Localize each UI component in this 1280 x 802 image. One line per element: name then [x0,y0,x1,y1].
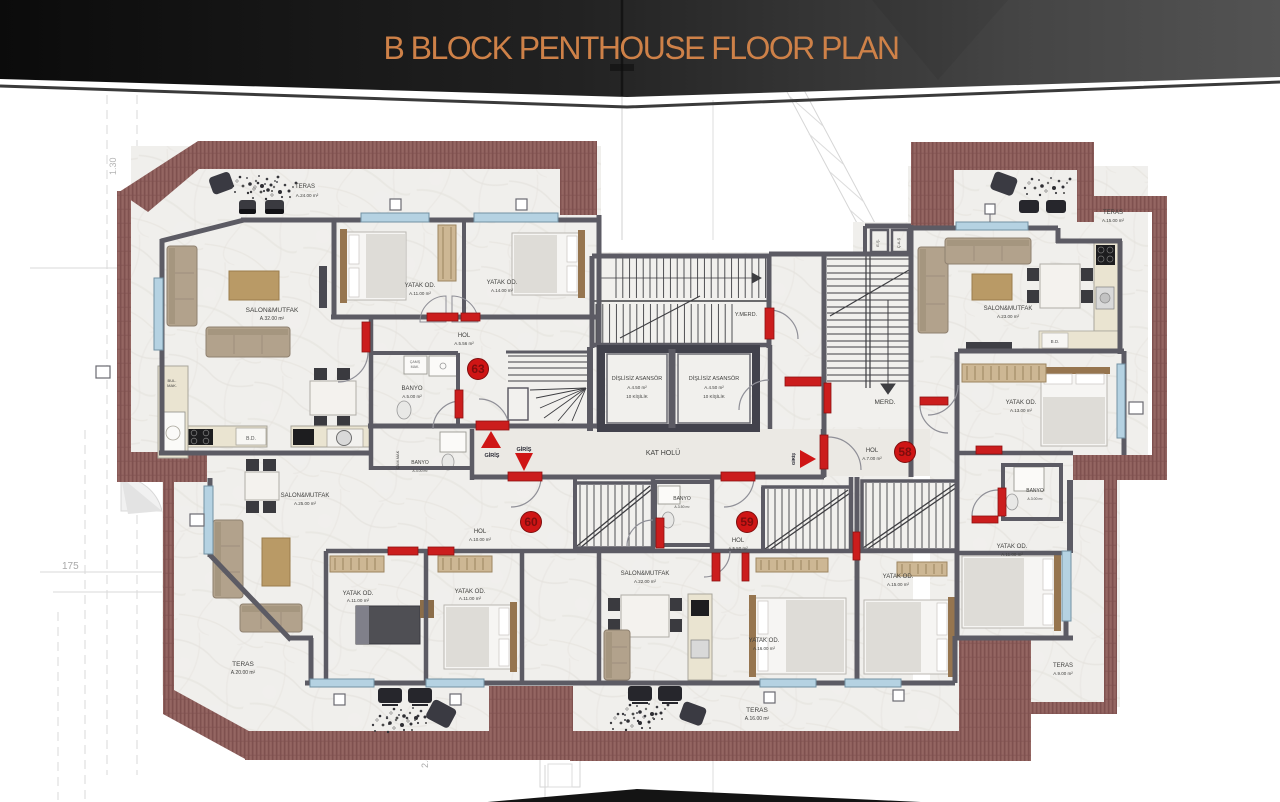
svg-text:TERAS: TERAS [746,707,768,714]
svg-text:MERD.: MERD. [875,399,896,406]
svg-text:A.14.00 m²: A.14.00 m² [491,288,514,293]
svg-text:A.3.50 m²: A.3.50 m² [674,505,690,509]
svg-text:GİRİŞ: GİRİŞ [517,446,532,453]
svg-text:TERAS: TERAS [1053,663,1073,669]
svg-text:GİRİŞ: GİRİŞ [485,452,500,459]
svg-text:B.D.: B.D. [1051,339,1060,344]
svg-text:A.15.00 m²: A.15.00 m² [887,582,910,587]
svg-text:A.22.00 m²: A.22.00 m² [634,579,657,584]
svg-text:A.9.00 m²: A.9.00 m² [1053,671,1073,676]
svg-text:A.20.00 m²: A.20.00 m² [231,670,256,676]
svg-text:YATAK OD.: YATAK OD. [343,591,374,597]
svg-text:MAK.: MAK. [411,365,420,369]
svg-text:A.24.00 m²: A.24.00 m² [296,193,319,198]
svg-text:10 KİŞİLİK: 10 KİŞİLİK [703,393,725,399]
svg-text:Y.MERD.: Y.MERD. [735,312,758,318]
svg-text:DİŞLİSİZ ASANSÖR: DİŞLİSİZ ASANSÖR [612,375,662,382]
svg-text:YATAK OD.: YATAK OD. [455,589,486,595]
svg-text:YATAK OD.: YATAK OD. [749,638,780,644]
svg-text:TERAS: TERAS [1103,210,1123,216]
svg-text:175: 175 [62,561,79,572]
svg-text:BANYO: BANYO [1026,488,1044,494]
svg-text:BANYO: BANYO [673,496,691,502]
svg-text:A.23.00 m²: A.23.00 m² [997,314,1020,319]
svg-text:YATAK OD.: YATAK OD. [997,544,1028,550]
svg-text:A.4.00 m²: A.4.00 m² [412,469,428,473]
svg-text:A.5.56 m²: A.5.56 m² [454,341,474,346]
svg-text:HOL: HOL [458,333,471,339]
svg-text:A.10.00 m²: A.10.00 m² [469,537,492,542]
svg-text:58: 58 [898,445,912,459]
svg-text:SALON&MUTFAK: SALON&MUTFAK [621,571,670,577]
svg-text:B BLOCK PENTHOUSE FLOOR PLAN: B BLOCK PENTHOUSE FLOOR PLAN [384,30,899,66]
svg-text:A.25.00 m²: A.25.00 m² [294,501,317,506]
svg-text:BANYO: BANYO [401,386,422,392]
svg-text:MAK.: MAK. [167,383,177,388]
svg-text:YATAK OD.: YATAK OD. [883,574,914,580]
svg-text:KAT HOLÜ: KAT HOLÜ [646,449,680,457]
svg-text:A.4.50 m²: A.4.50 m² [704,385,724,390]
svg-text:60: 60 [524,515,538,529]
svg-text:ÇAM.MAK: ÇAM.MAK [395,450,400,469]
svg-text:A.3.00 m²: A.3.00 m² [1027,497,1043,501]
svg-text:B.D.: B.D. [246,436,256,442]
svg-text:A.16.00 m²: A.16.00 m² [745,716,770,722]
svg-text:59: 59 [740,515,754,529]
svg-text:YATAK OD.: YATAK OD. [1006,400,1037,406]
svg-text:A.5.00 m²: A.5.00 m² [402,394,422,399]
svg-text:A.4.50 m²: A.4.50 m² [627,385,647,390]
svg-text:A.11.00 m²: A.11.00 m² [459,596,482,601]
svg-text:E.Ş.: E.Ş. [875,239,880,247]
svg-text:DİŞLİSİZ ASANSÖR: DİŞLİSİZ ASANSÖR [689,375,739,382]
svg-text:A.16.00 m²: A.16.00 m² [753,646,776,651]
svg-text:YATAK OD.: YATAK OD. [405,283,436,289]
svg-text:BANYO: BANYO [411,460,429,466]
svg-text:10 KİŞİLİK: 10 KİŞİLİK [626,393,648,399]
svg-text:HOL: HOL [732,538,745,544]
svg-text:TERAS: TERAS [295,184,315,190]
svg-text:SALON&MUTFAK: SALON&MUTFAK [984,306,1033,312]
svg-text:A.5.50 m²: A.5.50 m² [728,546,748,551]
svg-text:A.32.00 m²: A.32.00 m² [260,316,285,322]
svg-text:1.30: 1.30 [108,157,118,175]
svg-text:HOL: HOL [866,448,879,454]
svg-text:A.13.00 m²: A.13.00 m² [1010,408,1033,413]
svg-text:HOL: HOL [474,529,487,535]
svg-text:YATAK OD.: YATAK OD. [487,280,518,286]
svg-text:A.11.00 m²: A.11.00 m² [1001,552,1023,557]
svg-text:GİRİŞ: GİRİŞ [790,453,796,465]
svg-text:A.11.00 m²: A.11.00 m² [347,598,370,603]
svg-text:Ç.A.Ş: Ç.A.Ş [896,237,901,248]
svg-text:63: 63 [471,362,485,376]
svg-text:A.11.00 m²: A.11.00 m² [409,291,431,296]
svg-text:SALON&MUTFAK: SALON&MUTFAK [281,493,330,499]
svg-text:A.15.00 m²: A.15.00 m² [1102,218,1125,223]
svg-text:SALON&MUTFAK: SALON&MUTFAK [246,307,299,314]
svg-text:A.7.00 m²: A.7.00 m² [862,456,882,461]
svg-text:TERAS: TERAS [232,661,254,668]
svg-text:ÇAMŞ: ÇAMŞ [410,360,421,364]
